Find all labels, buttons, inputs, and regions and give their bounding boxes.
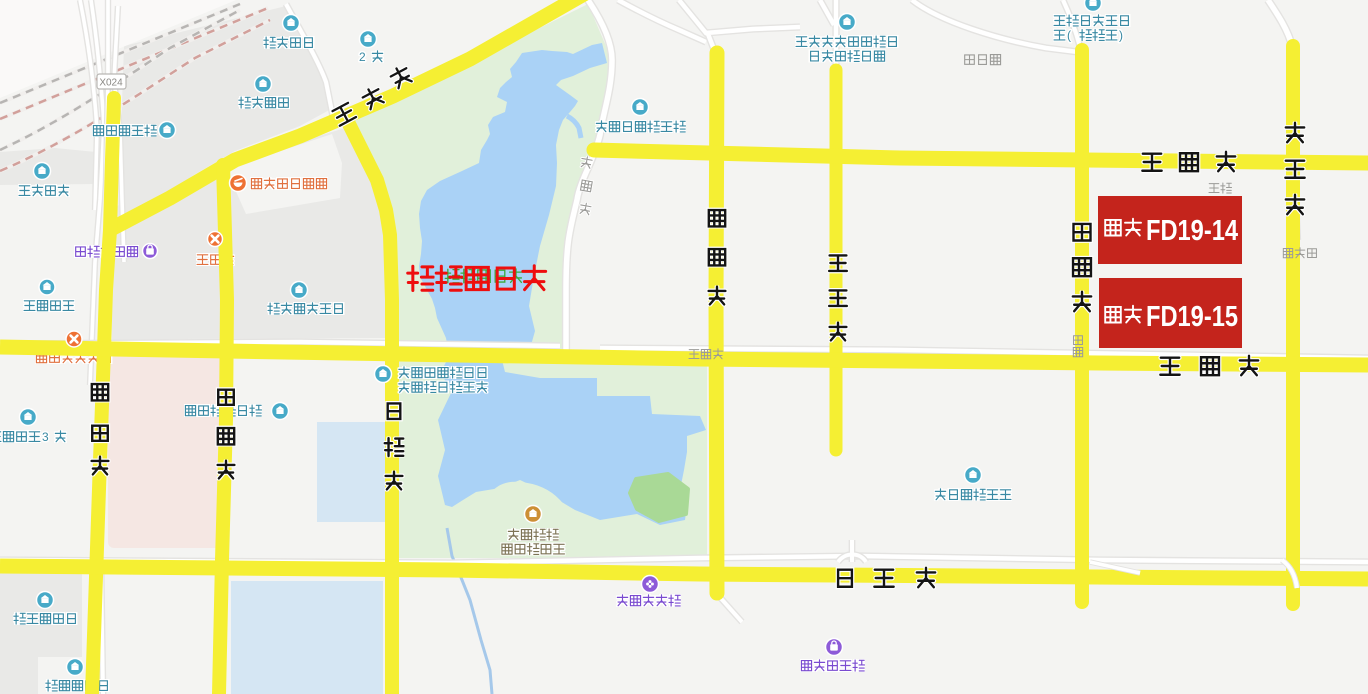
svg-text:FD19-15: FD19-15: [1146, 301, 1238, 333]
svg-text:): ): [1119, 28, 1123, 42]
svg-text:2: 2: [359, 50, 366, 64]
svg-text:(: (: [1067, 28, 1071, 42]
svg-text:FD19-14: FD19-14: [1146, 215, 1238, 247]
svg-text:3: 3: [42, 430, 49, 444]
svg-text:X024: X024: [99, 78, 123, 89]
